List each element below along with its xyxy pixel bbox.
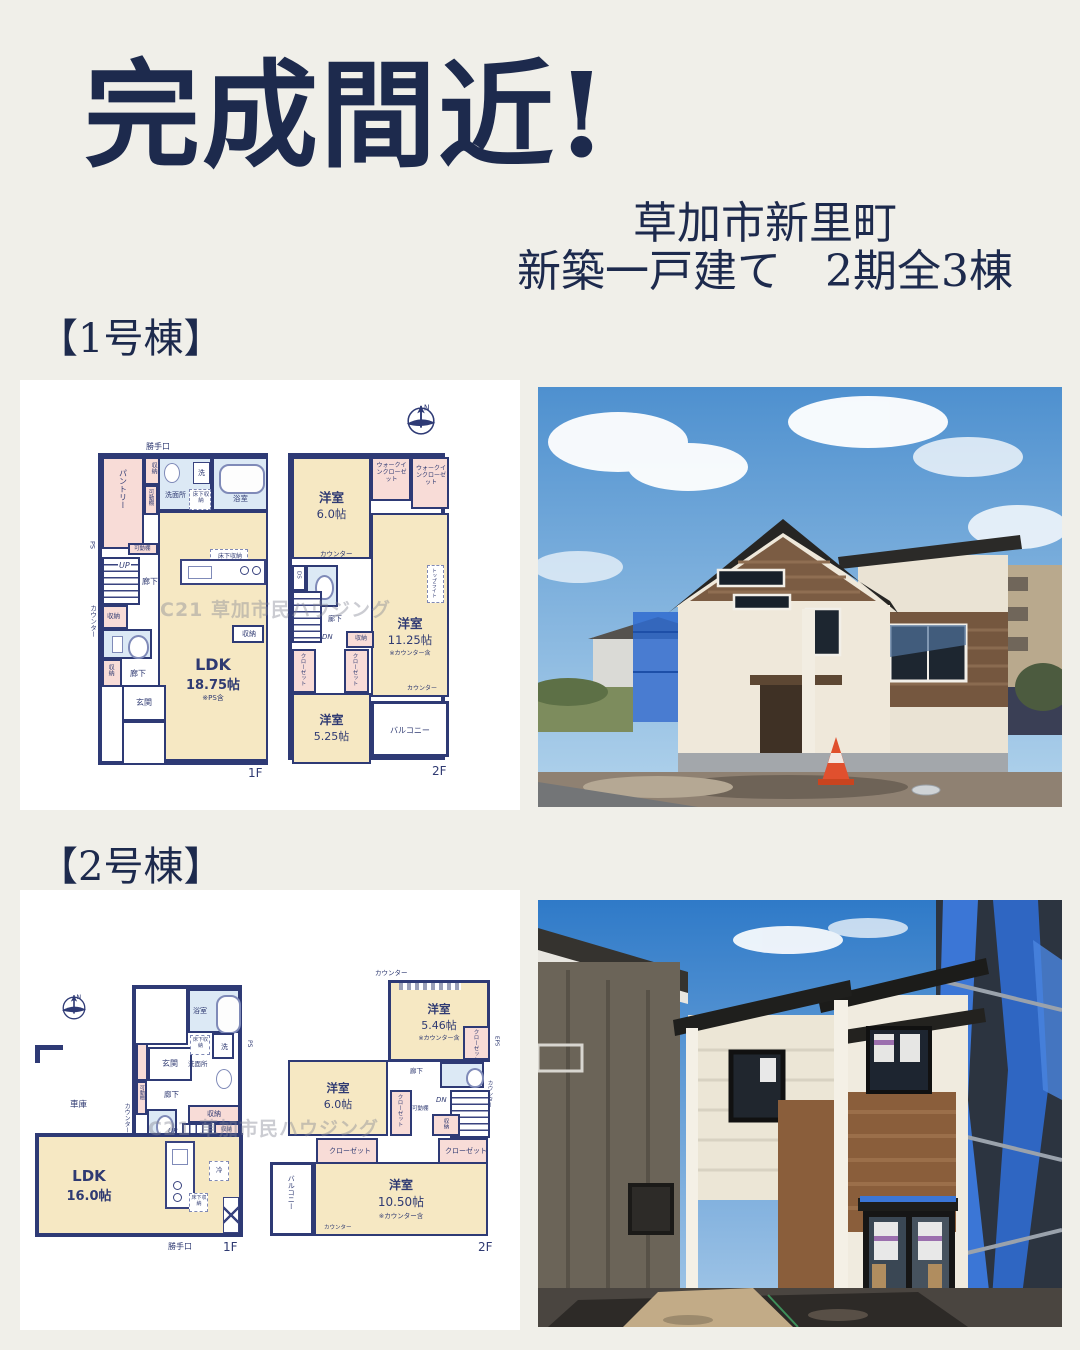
counter-label: カウンター <box>320 551 353 559</box>
counter-hatch <box>399 983 461 990</box>
page-title: 完成間近! <box>84 22 609 190</box>
room-size: 6.0帖 <box>290 1096 386 1112</box>
closet-label: クローゼット <box>351 653 357 686</box>
floorplan-2-panel: N 浴室 玄関 床下収納 洗 洗面所 可動棚 廊下 <box>20 890 520 1330</box>
ground <box>538 772 1062 807</box>
room-size: 11.25帖 <box>373 632 447 648</box>
dn-label: DN <box>436 1096 447 1104</box>
shelf-label: 可動棚 <box>138 1085 144 1100</box>
room-name: 洋室 <box>316 1176 486 1193</box>
ldk-size: 16.0帖 <box>0 1185 179 1204</box>
washroom-label: 洗面所 <box>165 491 186 499</box>
compass-icon: N <box>58 992 90 1024</box>
laundry-label: 洗 <box>198 469 205 477</box>
room-name: 洋室 <box>391 1001 487 1017</box>
floorplan-1-panel: N 勝手口 パントリー 収納 可動棚 洗 洗面所 床下収納 <box>20 380 520 810</box>
storage-label: 収納 <box>150 462 157 474</box>
ps-label: PS <box>88 541 96 549</box>
room-size: 6.0帖 <box>294 506 369 522</box>
underfloor-storage-box: 床下収納 <box>189 489 211 510</box>
entrance-side <box>136 1043 148 1081</box>
stove-burner <box>173 1181 182 1190</box>
hallway-label: 廊下 <box>142 577 158 586</box>
toilet-bowl <box>128 635 149 659</box>
sink-fixture <box>216 1069 232 1089</box>
bathtub <box>216 995 241 1034</box>
storage-label: 収納 <box>355 635 367 642</box>
floor-label-2f: 2F <box>478 1240 493 1254</box>
ds-label: DS <box>295 571 301 579</box>
entrance-label: 玄関 <box>136 698 152 707</box>
pantry-label: パントリー <box>118 469 127 509</box>
room-name: 洋室 <box>294 711 369 728</box>
balcony-label: バルコニー <box>390 726 430 735</box>
room-closet: クローゼット <box>292 649 316 693</box>
floor-label-2f: 2F <box>432 764 447 778</box>
room-bathroom: 浴室 <box>212 457 268 511</box>
room-note: ※カウンター含 <box>373 648 447 657</box>
ps-label: PS <box>246 1040 253 1047</box>
room-shelf: 可動棚 <box>136 1081 147 1115</box>
stove-burner <box>240 566 249 575</box>
shelf-label: 可動棚 <box>134 546 151 552</box>
hallway-label: 廊下 <box>130 669 146 678</box>
underfloor-label: 床下収納 <box>191 1196 207 1208</box>
room-label-group: 洋室 6.0帖 <box>294 487 369 522</box>
room-pantry: パントリー <box>102 457 144 549</box>
watermark: C21 草加市民ハウジング <box>148 1114 379 1141</box>
toplight-box: トップライト <box>427 565 444 603</box>
kitchen-sink <box>172 1149 188 1165</box>
ldk-label-group: LDK 18.75帖 ※PS含 <box>160 655 266 703</box>
room-western-c: 洋室 5.25帖 <box>292 693 371 764</box>
room-toilet <box>102 629 152 659</box>
kitchen-counter <box>180 559 266 585</box>
bathroom-label: 浴室 <box>193 1007 207 1015</box>
underfloor-label: 床下収納 <box>192 492 210 505</box>
fridge-box: 冷 <box>209 1161 229 1181</box>
counter-label: カウンター <box>407 685 437 692</box>
eps-label: EPS <box>493 1036 499 1046</box>
toplight-label: トップライト <box>430 568 436 598</box>
room-name: 洋室 <box>290 1080 386 1096</box>
room-washroom: 洗 洗面所 床下収納 <box>158 457 212 511</box>
storage-label: 収納 <box>442 1118 448 1129</box>
room-size: 5.25帖 <box>294 728 369 744</box>
entrance-label: 玄関 <box>162 1059 178 1068</box>
ds-shaft: DS <box>292 565 306 591</box>
fridge-label: 冷 <box>216 1167 223 1175</box>
up-label: UP <box>118 561 131 570</box>
room-storage: 収納 <box>346 631 374 648</box>
laundry-box: 洗 <box>212 1033 234 1059</box>
room-ldk: 床下収納 LDK 18.75帖 ※PS含 収納 <box>158 511 268 761</box>
room-shelf: 可動棚 <box>144 485 158 515</box>
toilet-bowl <box>466 1068 484 1088</box>
room-closet: クローゼット <box>316 1138 378 1164</box>
wic-label: ウォークインクローゼット <box>416 465 446 486</box>
front-room <box>136 989 188 1045</box>
garage-wall <box>35 1045 40 1063</box>
counter-label: カウンター <box>88 605 96 638</box>
room-wic: ウォークインクローゼット <box>371 457 411 501</box>
subtitle-line1: 草加市新里町 <box>470 200 1060 248</box>
laundry-box: 洗 <box>193 462 210 484</box>
garage-label: 車庫 <box>70 1100 87 1110</box>
ldk-label: LDK <box>160 655 266 674</box>
room-toilet <box>440 1062 484 1088</box>
toilet-tank <box>112 636 123 653</box>
balcony-label: バルコニー <box>287 1175 295 1210</box>
kitchen-sink <box>188 566 212 579</box>
compass-n-label: N <box>424 404 430 413</box>
counter-label: カウンター <box>375 970 408 978</box>
ground <box>538 1288 1062 1327</box>
room-closet: クローゼット <box>463 1026 490 1060</box>
room-closet: クローゼット <box>438 1138 488 1164</box>
subtitle: 草加市新里町 新築一戸建て 2期全3棟 <box>470 200 1060 297</box>
sink-fixture <box>164 463 180 483</box>
back-door-label: 勝手口 <box>146 442 170 451</box>
room-note: ※カウンター含 <box>316 1210 486 1220</box>
ldk-size: 18.75帖 <box>160 674 266 693</box>
room-western-a: 洋室 6.0帖 <box>292 457 371 559</box>
underfloor-storage-box: 床下収納 <box>190 1035 210 1055</box>
storage-label: 収納 <box>107 613 120 621</box>
house-photo-2 <box>538 900 1062 1327</box>
stove-burner <box>173 1193 182 1202</box>
hallway-label: 廊下 <box>164 1091 179 1100</box>
section2-heading: 【2号棟】 <box>38 834 223 892</box>
ldk-label-group: LDK 16.0帖 <box>0 1167 179 1204</box>
storage-box: 収納 <box>232 625 264 643</box>
shelf-label: 可動棚 <box>147 489 153 506</box>
closet-label: クローゼット <box>299 653 305 686</box>
room-label-group: 洋室 6.0帖 <box>290 1080 386 1112</box>
room-wic: ウォークインクローゼット <box>411 457 449 509</box>
underfloor-storage-box: 床下収納 <box>189 1193 208 1212</box>
watermark: C21 草加市民ハウジング <box>160 595 391 622</box>
room-closet: クローゼット <box>390 1090 412 1136</box>
floor-label-1f: 1F <box>223 1240 238 1254</box>
dn-label: DN <box>322 633 333 641</box>
poster-canvas: 完成間近! 草加市新里町 新築一戸建て 2期全3棟 【1号棟】 【2号棟】 N … <box>0 0 1080 1350</box>
shelf-label: 可動棚 <box>412 1106 429 1112</box>
floor-label-1f: 1F <box>248 766 263 780</box>
hallway-label: 廊下 <box>410 1068 423 1076</box>
back-door-label: 勝手口 <box>168 1242 192 1251</box>
stove-burner <box>252 566 261 575</box>
counter-label: カウンター <box>123 1103 130 1133</box>
bathroom-label: 浴室 <box>233 495 248 504</box>
hatch-area <box>223 1197 239 1233</box>
laundry-label: 洗 <box>221 1043 228 1051</box>
closet-label: クローゼット <box>396 1094 402 1127</box>
compass-icon: N <box>402 402 440 440</box>
room-closet: クローゼット <box>344 649 369 693</box>
bathtub <box>219 464 265 494</box>
room-storage: 収納 <box>432 1114 460 1136</box>
wic-label: ウォークインクローゼット <box>376 462 407 483</box>
room-entrance: 玄関 <box>148 1047 192 1081</box>
balcony: バルコニー <box>270 1162 314 1236</box>
room-label-group: 洋室 5.25帖 <box>294 711 369 744</box>
room-size: 10.50帖 <box>316 1193 486 1210</box>
room-bathroom: 浴室 <box>188 989 240 1033</box>
room-storage: 収納 <box>102 605 128 629</box>
washroom-label: 洗面所 <box>188 1061 208 1069</box>
plan2-1f-ldk: LDK 16.0帖 冷 床下収納 <box>35 1133 243 1237</box>
section1-heading: 【1号棟】 <box>38 306 223 364</box>
entrance-porch <box>122 721 166 765</box>
compass-n-label: N <box>76 993 81 1001</box>
room-name: 洋室 <box>294 487 369 506</box>
ldk-label: LDK <box>0 1167 179 1185</box>
closet-label: クローゼット <box>329 1147 371 1155</box>
house-photo-1 <box>538 387 1062 807</box>
room-entrance: 玄関 <box>122 685 166 721</box>
closet-label: クローゼット <box>445 1147 487 1155</box>
storage-label: 収納 <box>242 630 256 638</box>
ldk-note: ※PS含 <box>160 693 266 703</box>
closet-label: クローゼット <box>472 1029 478 1062</box>
subtitle-line2: 新築一戸建て 2期全3棟 <box>470 248 1060 296</box>
balcony: バルコニー <box>371 701 449 757</box>
plan2-2f-room-c: 洋室 10.50帖 ※カウンター含 カウンター <box>314 1162 488 1236</box>
shelf-bar: 可動棚 <box>128 543 158 555</box>
storage-label: 収納 <box>107 664 114 676</box>
underfloor-label: 床下収納 <box>192 1038 209 1050</box>
room-storage: 収納 <box>102 659 122 687</box>
counter-label: カウンター <box>324 1225 352 1231</box>
room-label-group: 洋室 10.50帖 ※カウンター含 <box>316 1176 486 1220</box>
left-neighbor-house <box>538 928 688 1327</box>
